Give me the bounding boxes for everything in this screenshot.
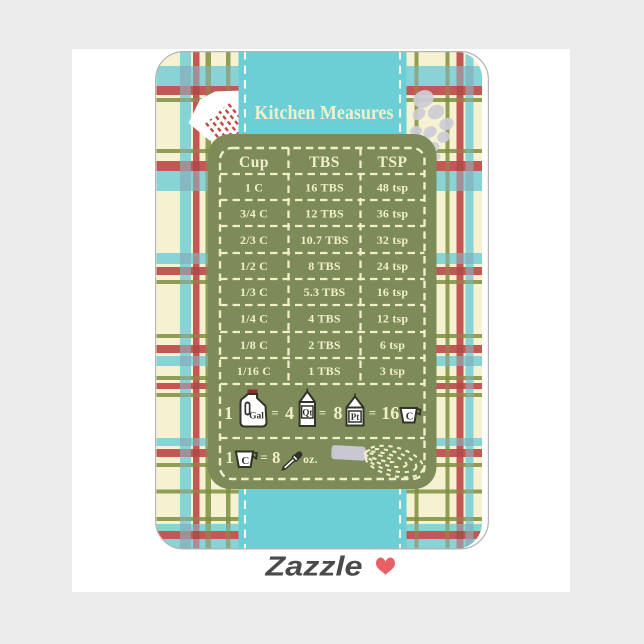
svg-text:Zazzle: Zazzle bbox=[264, 551, 362, 582]
